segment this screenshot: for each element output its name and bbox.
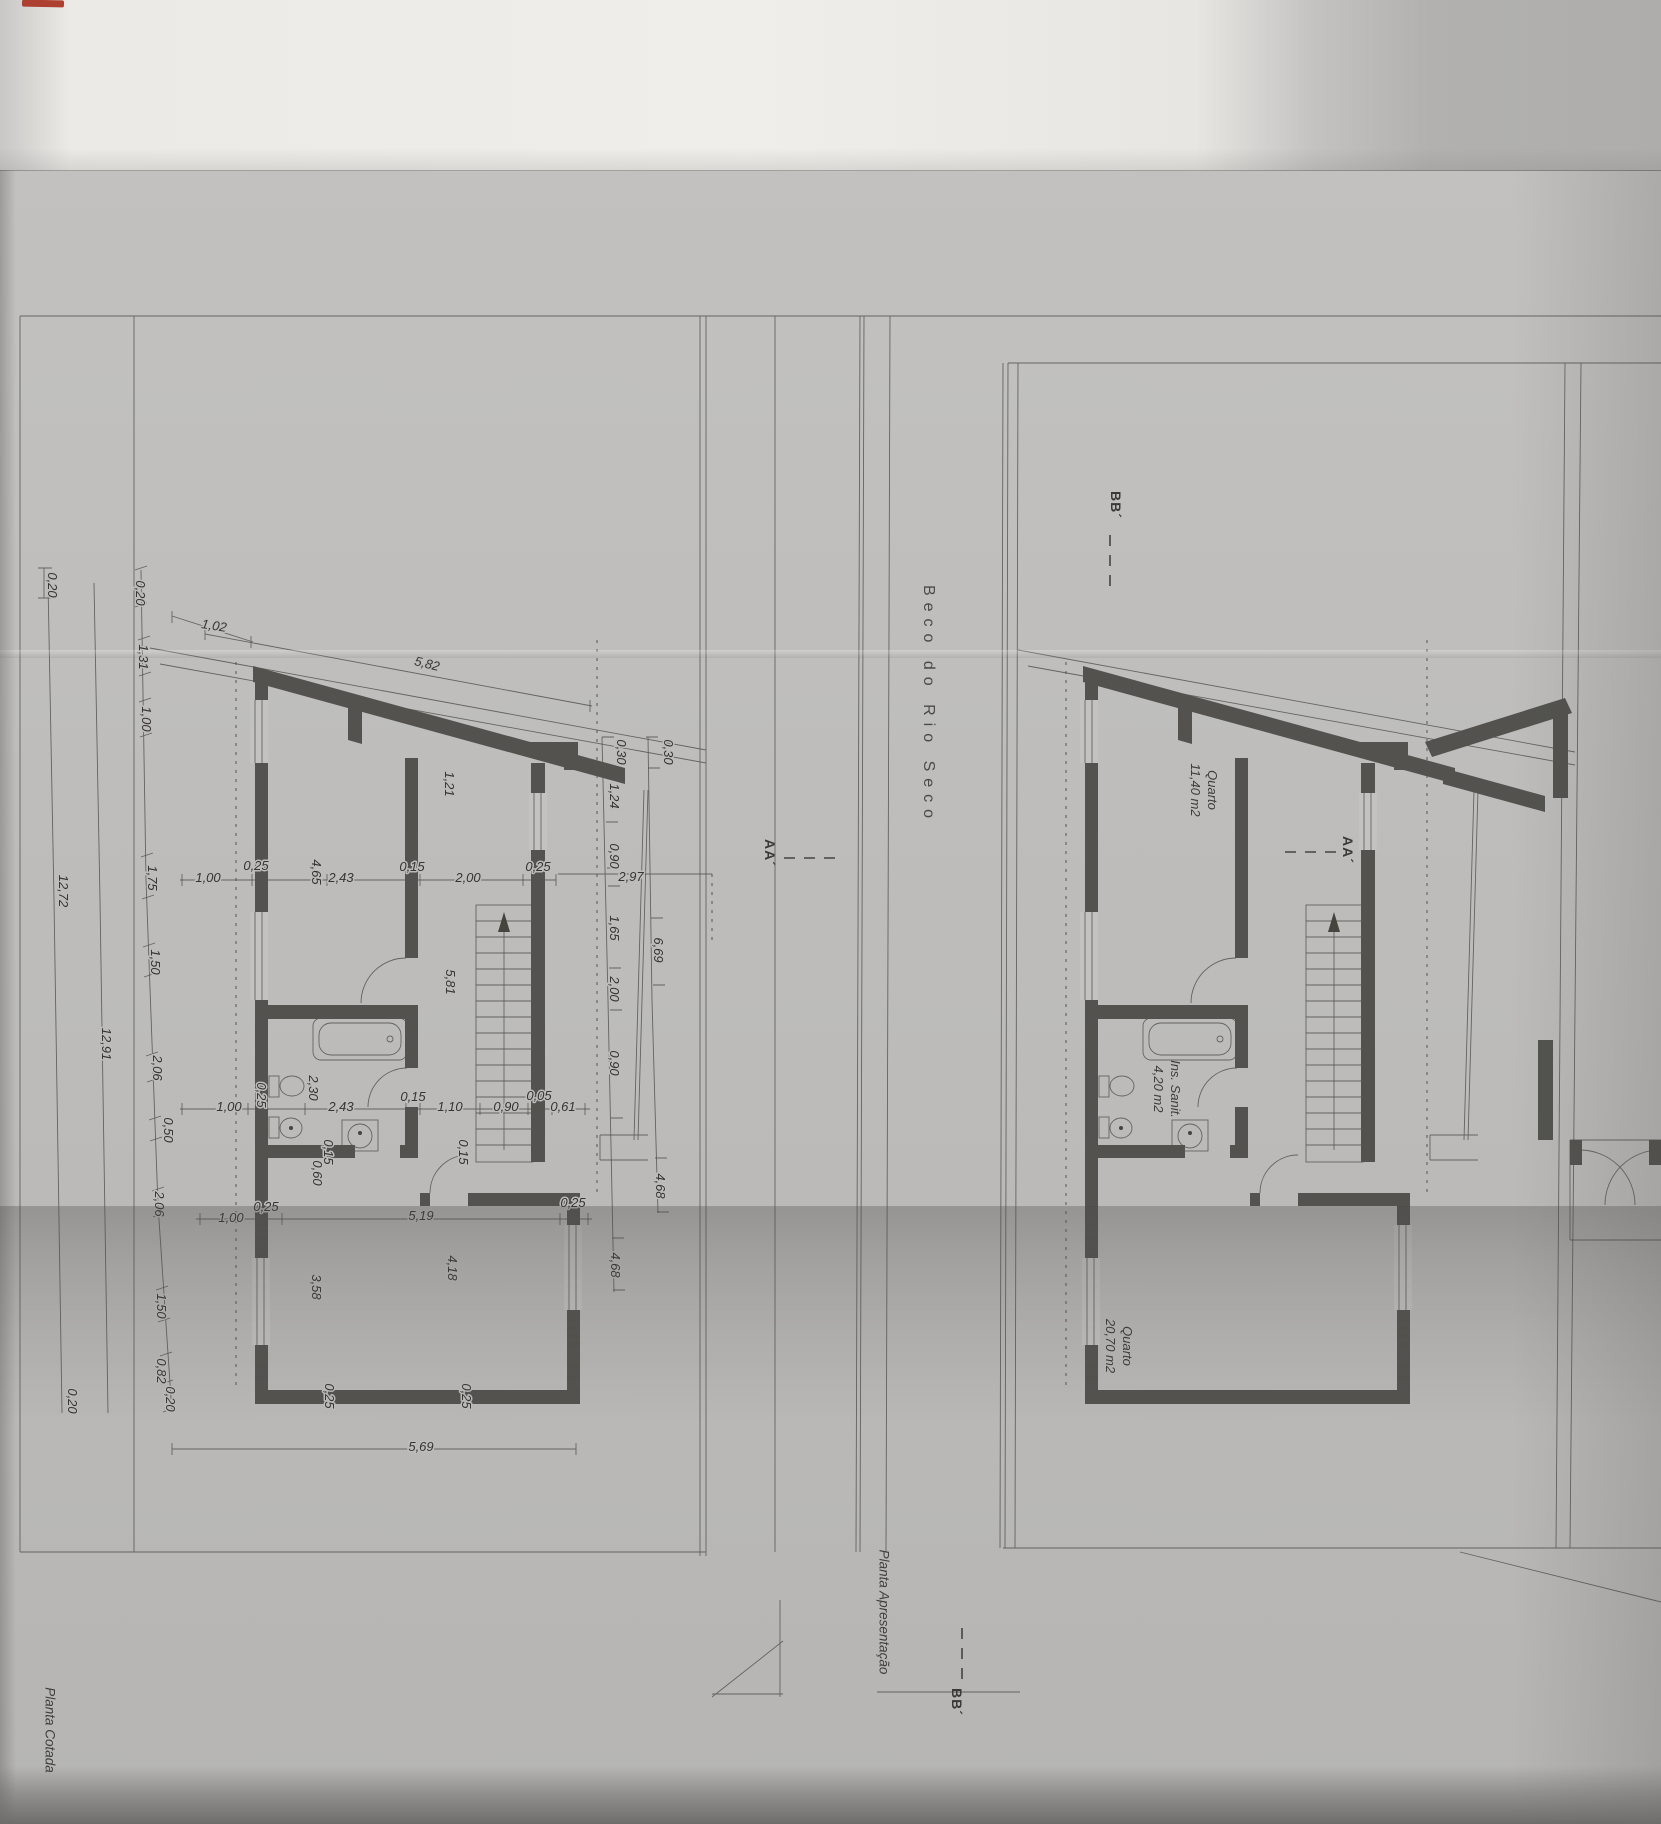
dimension-label: 2,06 <box>150 1054 165 1081</box>
dimension-label: 1,00 <box>216 1099 242 1114</box>
dimension-label: 0,25 <box>254 1082 269 1108</box>
room-name: Quarto <box>1119 1319 1136 1373</box>
dimension-label: 4,65 <box>309 859 324 885</box>
dimension-label: 0,90 <box>607 1050 622 1076</box>
dimension-label: 0,20 <box>163 1386 178 1412</box>
dimension-label: 5,69 <box>408 1439 433 1454</box>
dimension-label: 1,65 <box>607 915 622 941</box>
dimension-label: 5,82 <box>413 653 442 674</box>
dimension-label: 0,61 <box>550 1099 575 1114</box>
dimension-label: 0,15 <box>399 859 425 874</box>
dimension-label: 0,25 <box>322 1383 337 1409</box>
dimension-label: 0,25 <box>525 859 551 874</box>
dimension-label: 1,10 <box>437 1099 463 1114</box>
dimension-label: 0,25 <box>243 858 269 873</box>
dimension-label: 2,30 <box>306 1074 321 1101</box>
room-name: Quarto <box>1204 763 1221 816</box>
street-name: Beco do Rio Seco <box>919 585 937 825</box>
dimension-label: 0,90 <box>607 843 622 869</box>
dimension-label: 0,05 <box>526 1088 552 1103</box>
right-plan-title: Planta Apresentação <box>877 1550 892 1675</box>
dimension-label: 1,24 <box>607 783 622 808</box>
dimension-label: 6,69 <box>651 937 666 962</box>
room-area: 20,70 m2 <box>1102 1319 1119 1373</box>
dimension-label: 0,30 <box>614 739 629 765</box>
dimension-label: 0,25 <box>560 1195 586 1210</box>
left-plan-title: Planta Cotada <box>43 1687 58 1773</box>
dimension-label: 5,81 <box>443 969 458 994</box>
dimension-label: 2,00 <box>454 870 481 885</box>
room-label-quarto-2: Quarto 20,70 m2 <box>1102 1319 1136 1373</box>
dimension-label: 4,18 <box>445 1255 460 1281</box>
dimension-label: 1,75 <box>145 865 160 891</box>
section-marker-bb-bottom: BB´ <box>949 1688 965 1716</box>
right-floor-plan <box>1066 640 1478 1404</box>
dimension-label: 2,06 <box>152 1190 167 1217</box>
dimension-label: 1,50 <box>148 949 163 975</box>
dimension-label: 4,68 <box>608 1252 623 1278</box>
dimension-label: 1,50 <box>154 1293 169 1319</box>
dimension-label: 12,72 <box>56 875 71 908</box>
dimension-label: 2,97 <box>617 869 644 884</box>
dimension-label: 0,15 <box>400 1089 426 1104</box>
dimension-label: 2,43 <box>327 1099 354 1114</box>
dimension-label: 12,91 <box>99 1028 114 1061</box>
dimension-label: 5,19 <box>408 1208 433 1223</box>
room-label-quarto-1: Quarto 11,40 m2 <box>1187 763 1221 816</box>
room-area: 11,40 m2 <box>1187 763 1204 816</box>
dimension-label: 0,90 <box>493 1099 519 1114</box>
room-area: 4,20 m2 <box>1150 1060 1167 1118</box>
dimension-label: 3,58 <box>309 1274 324 1300</box>
dimension-label: 1,31 <box>136 644 151 669</box>
dimension-label: 0,20 <box>65 1388 80 1414</box>
dimension-label: 0,20 <box>133 580 148 606</box>
dimension-label: 0,50 <box>161 1117 176 1143</box>
dimension-label: 0,25 <box>459 1383 474 1409</box>
section-marker-aa-left: AA´ <box>762 839 778 867</box>
dimension-label: 1,00 <box>139 706 154 732</box>
dimension-label: 0,60 <box>310 1160 325 1186</box>
dimension-label: 4,68 <box>653 1173 668 1199</box>
section-marker-aa-right: AA´ <box>1340 836 1356 864</box>
dimension-label: 0,30 <box>661 739 676 765</box>
dimension-label: 2,00 <box>607 975 622 1002</box>
dimension-label: 1,21 <box>442 771 457 796</box>
room-label-sanit: Ins. Sanit. 4,20 m2 <box>1150 1060 1184 1118</box>
dimension-label: 1,00 <box>218 1210 244 1225</box>
dimension-label: 0,20 <box>45 572 60 598</box>
dimension-label: 0,25 <box>253 1199 279 1214</box>
photographed-floorplan-sheet: 1,025,820,200,201,311,001,751,502,060,50… <box>0 0 1661 1824</box>
room-name: Ins. Sanit. <box>1167 1060 1184 1118</box>
section-marker-bb-top: BB´ <box>1108 491 1124 519</box>
dimension-label: 0,82 <box>154 1358 169 1384</box>
floor-plan-drawing: 1,025,820,200,201,311,001,751,502,060,50… <box>0 0 1661 1824</box>
left-floor-plan <box>236 640 648 1404</box>
dimension-label: 2,43 <box>327 870 354 885</box>
dimension-label: 1,00 <box>195 870 221 885</box>
dimension-label: 0,15 <box>456 1139 471 1165</box>
